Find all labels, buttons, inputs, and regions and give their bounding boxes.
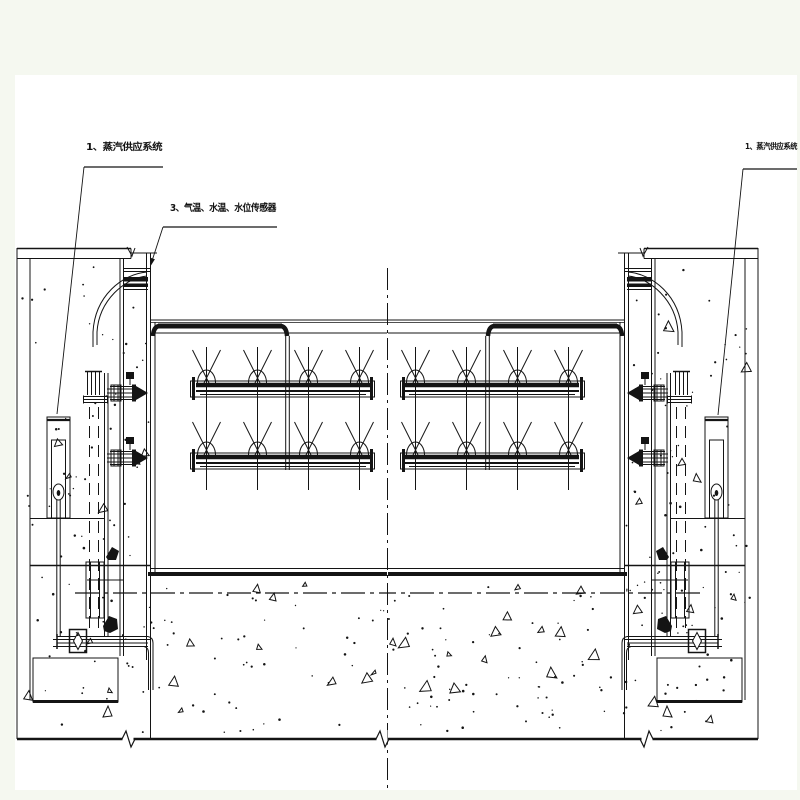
label-sensors: 3、气温、水温、水位传感器: [170, 202, 277, 214]
label-steam-left: 1、蒸汽供应系统: [86, 141, 163, 153]
paper-sheet: [15, 75, 797, 790]
label-steam-right: 1、蒸汽供应系统: [745, 141, 797, 151]
engineering-drawing: 1、蒸汽供应系统 3、气温、水温、水位传感器 1、蒸汽供应系统: [0, 0, 800, 800]
foundation-center-break: [376, 730, 389, 748]
